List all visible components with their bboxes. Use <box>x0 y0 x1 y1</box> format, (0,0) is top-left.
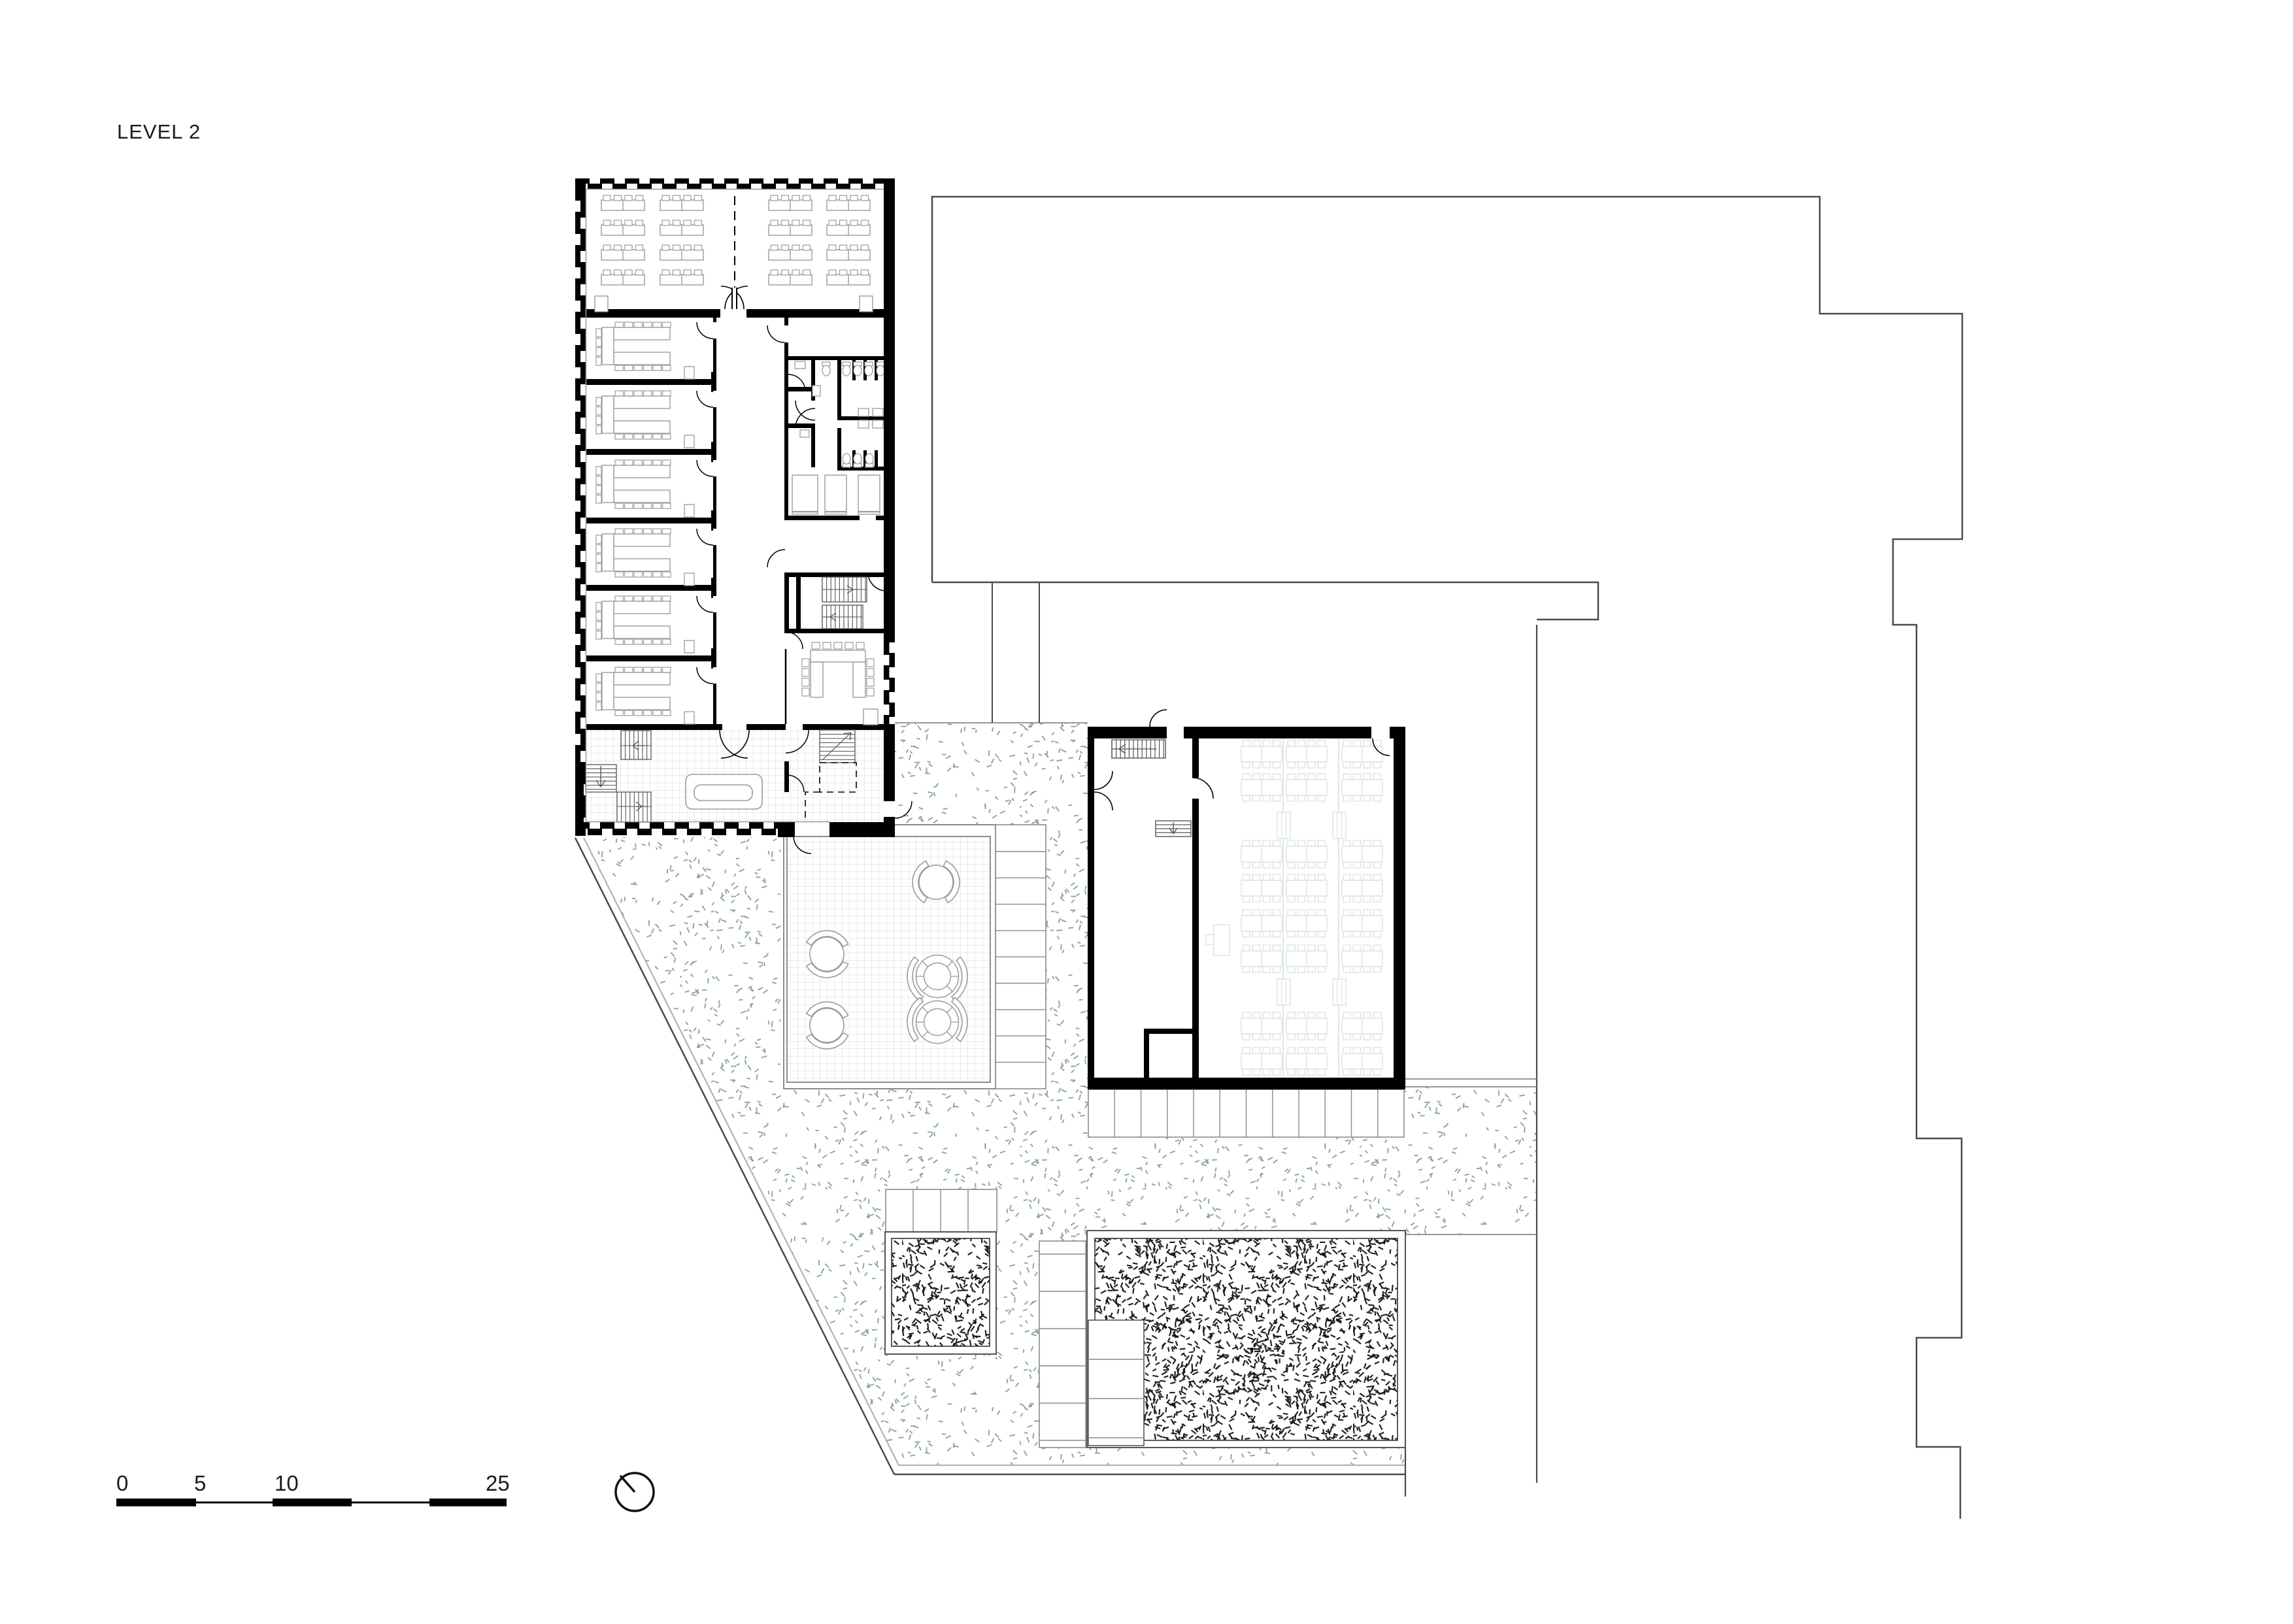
svg-text:10: 10 <box>275 1471 299 1495</box>
svg-text:5: 5 <box>194 1471 206 1495</box>
svg-text:0: 0 <box>116 1471 128 1495</box>
svg-text:25: 25 <box>486 1471 510 1495</box>
svg-text:LEVEL 2: LEVEL 2 <box>117 120 201 143</box>
